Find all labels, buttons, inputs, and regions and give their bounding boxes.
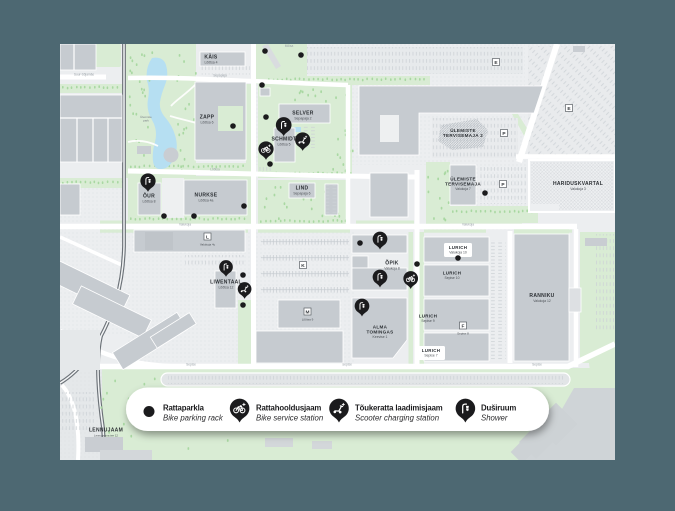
svg-text:RANNIKU: RANNIKU bbox=[529, 293, 554, 299]
svg-text:SCHMIDT: SCHMIDT bbox=[272, 137, 297, 143]
svg-text:Sepise 9: Sepise 9 bbox=[421, 319, 434, 323]
svg-text:Valukoja: Valukoja bbox=[179, 223, 191, 227]
svg-text:Suur-Sõjamäe: Suur-Sõjamäe bbox=[74, 73, 95, 77]
svg-text:LURICH: LURICH bbox=[422, 348, 440, 353]
svg-text:TOMINGAS: TOMINGAS bbox=[366, 329, 393, 334]
svg-text:Lõõtsa 6: Lõõtsa 6 bbox=[200, 121, 213, 125]
svg-text:LENNUJAAM: LENNUJAAM bbox=[89, 428, 123, 434]
svg-text:LURICH: LURICH bbox=[419, 314, 437, 319]
svg-text:LURICH: LURICH bbox=[443, 271, 461, 276]
svg-text:Lennujaama tee 12: Lennujaama tee 12 bbox=[94, 434, 118, 438]
svg-text:Lõõtsa 4a: Lõõtsa 4a bbox=[199, 199, 214, 203]
svg-text:LIND: LIND bbox=[296, 186, 309, 192]
svg-text:Shower: Shower bbox=[481, 414, 508, 423]
svg-text:park: park bbox=[143, 119, 149, 123]
svg-text:M: M bbox=[306, 309, 310, 315]
svg-text:Sepapaja 2: Sepapaja 2 bbox=[294, 117, 311, 121]
svg-text:Duširuum: Duširuum bbox=[481, 404, 516, 413]
svg-text:Lõõtsa 12: Lõõtsa 12 bbox=[219, 286, 234, 290]
svg-text:Sepise 10: Sepise 10 bbox=[444, 276, 459, 280]
svg-text:NURKSE: NURKSE bbox=[195, 193, 218, 199]
svg-text:LURICH: LURICH bbox=[449, 245, 467, 250]
svg-text:Sepise: Sepise bbox=[532, 363, 542, 367]
svg-text:Valukoja 3: Valukoja 3 bbox=[570, 187, 586, 191]
svg-text:Valukoja 12: Valukoja 12 bbox=[533, 299, 551, 303]
svg-text:Lõõtsa: Lõõtsa bbox=[210, 168, 220, 172]
svg-text:Valukoja 8: Valukoja 8 bbox=[384, 267, 400, 271]
svg-text:K: K bbox=[301, 263, 305, 269]
svg-text:Lõõtsa 5: Lõõtsa 5 bbox=[277, 143, 290, 147]
svg-text:Sepise: Sepise bbox=[342, 363, 352, 367]
svg-text:Valukoja 7: Valukoja 7 bbox=[455, 187, 471, 191]
svg-text:Lõõtsa 9: Lõõtsa 9 bbox=[302, 318, 314, 322]
svg-text:LIWENTAAL: LIWENTAAL bbox=[210, 280, 242, 286]
svg-text:Bike parking rack: Bike parking rack bbox=[163, 414, 224, 423]
svg-text:Mõisa: Mõisa bbox=[285, 44, 294, 48]
svg-text:Lõõtsa 4: Lõõtsa 4 bbox=[204, 61, 217, 65]
svg-text:TERVISEMAJA 2: TERVISEMAJA 2 bbox=[443, 133, 483, 138]
svg-text:SELVER: SELVER bbox=[292, 111, 314, 117]
svg-text:Keevise 1: Keevise 1 bbox=[373, 335, 388, 339]
svg-text:Tõukeratta laadimisjaam: Tõukeratta laadimisjaam bbox=[355, 404, 443, 413]
svg-text:Valukoja: Valukoja bbox=[462, 223, 474, 227]
svg-text:Sepapaja 6: Sepapaja 6 bbox=[293, 192, 310, 196]
svg-text:Bike service station: Bike service station bbox=[256, 414, 323, 423]
svg-text:ZAPP: ZAPP bbox=[200, 115, 215, 121]
svg-text:ÕUR: ÕUR bbox=[143, 193, 155, 200]
svg-text:KÄIS: KÄIS bbox=[204, 54, 218, 61]
svg-text:Lõõtsa 8: Lõõtsa 8 bbox=[142, 200, 155, 204]
svg-text:Sepise 7: Sepise 7 bbox=[424, 354, 437, 358]
svg-text:ÕPIK: ÕPIK bbox=[385, 260, 399, 267]
svg-text:TERVISEMAJA: TERVISEMAJA bbox=[445, 181, 481, 186]
svg-text:Valukoja 4c: Valukoja 4c bbox=[200, 243, 216, 247]
svg-text:Sepise: Sepise bbox=[186, 363, 196, 367]
svg-text:Valukoja 10: Valukoja 10 bbox=[449, 251, 467, 255]
svg-text:F: F bbox=[462, 323, 465, 329]
svg-text:HARIDUSKVARTAL: HARIDUSKVARTAL bbox=[553, 181, 603, 187]
svg-text:Rattahooldusjaam: Rattahooldusjaam bbox=[256, 404, 321, 413]
svg-text:Rattaparkla: Rattaparkla bbox=[163, 404, 205, 413]
svg-text:Sepise 8: Sepise 8 bbox=[457, 332, 469, 336]
svg-text:L: L bbox=[206, 234, 209, 240]
svg-text:Scooter charging station: Scooter charging station bbox=[355, 414, 439, 423]
